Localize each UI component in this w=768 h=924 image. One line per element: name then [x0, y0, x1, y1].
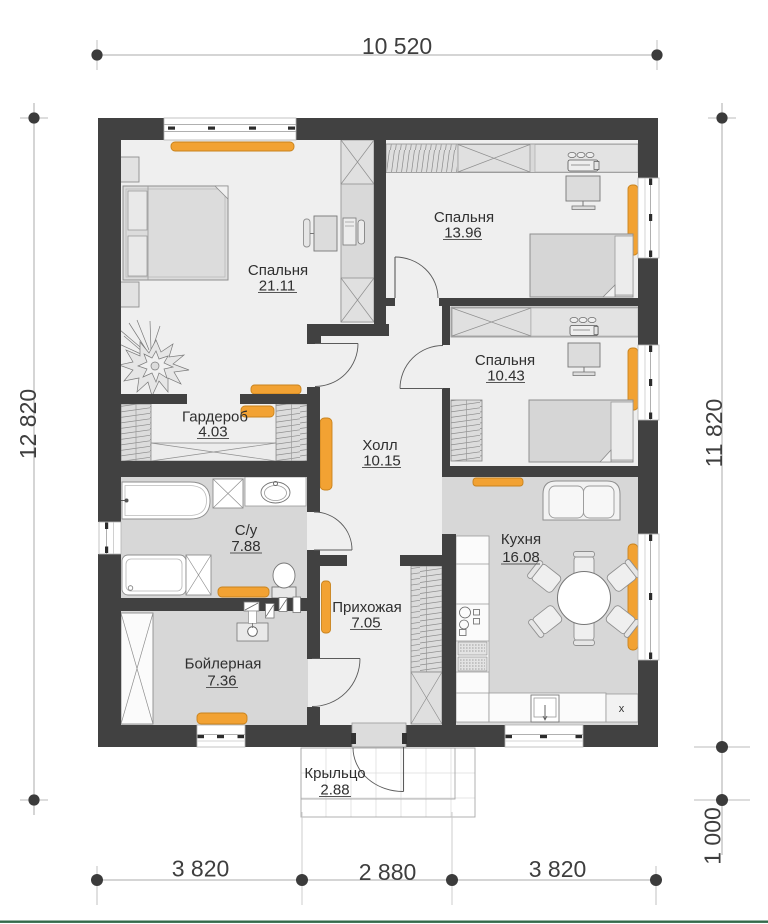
svg-text:Кухня: Кухня	[501, 531, 541, 548]
svg-text:3 820: 3 820	[529, 856, 587, 882]
svg-text:Спальня: Спальня	[475, 352, 535, 369]
svg-text:10.15: 10.15	[363, 453, 401, 470]
svg-text:4.03: 4.03	[198, 424, 227, 441]
svg-text:2 880: 2 880	[359, 859, 417, 885]
svg-text:7.36: 7.36	[207, 673, 236, 690]
svg-text:Бойлерная: Бойлерная	[185, 656, 262, 673]
svg-text:13.96: 13.96	[444, 225, 482, 242]
svg-text:10.43: 10.43	[487, 368, 525, 385]
svg-text:Крыльцо: Крыльцо	[304, 765, 365, 782]
svg-text:2.88: 2.88	[320, 782, 349, 799]
svg-text:16.08: 16.08	[502, 549, 540, 566]
svg-text:Прихожая: Прихожая	[332, 599, 402, 616]
svg-text:С/у: С/у	[235, 522, 258, 539]
svg-text:1 000: 1 000	[700, 807, 726, 865]
svg-text:11 820: 11 820	[701, 399, 727, 468]
svg-text:Спальня: Спальня	[434, 209, 494, 226]
svg-text:3 820: 3 820	[172, 856, 230, 882]
svg-text:21.11: 21.11	[259, 278, 295, 295]
svg-text:7.05: 7.05	[351, 615, 380, 632]
svg-text:7.88: 7.88	[231, 538, 260, 555]
svg-text:Спальня: Спальня	[248, 262, 308, 279]
svg-text:Холл: Холл	[362, 437, 397, 454]
svg-text:12 820: 12 820	[15, 389, 41, 459]
svg-text:x: x	[619, 703, 625, 715]
svg-text:10 520: 10 520	[362, 33, 432, 59]
